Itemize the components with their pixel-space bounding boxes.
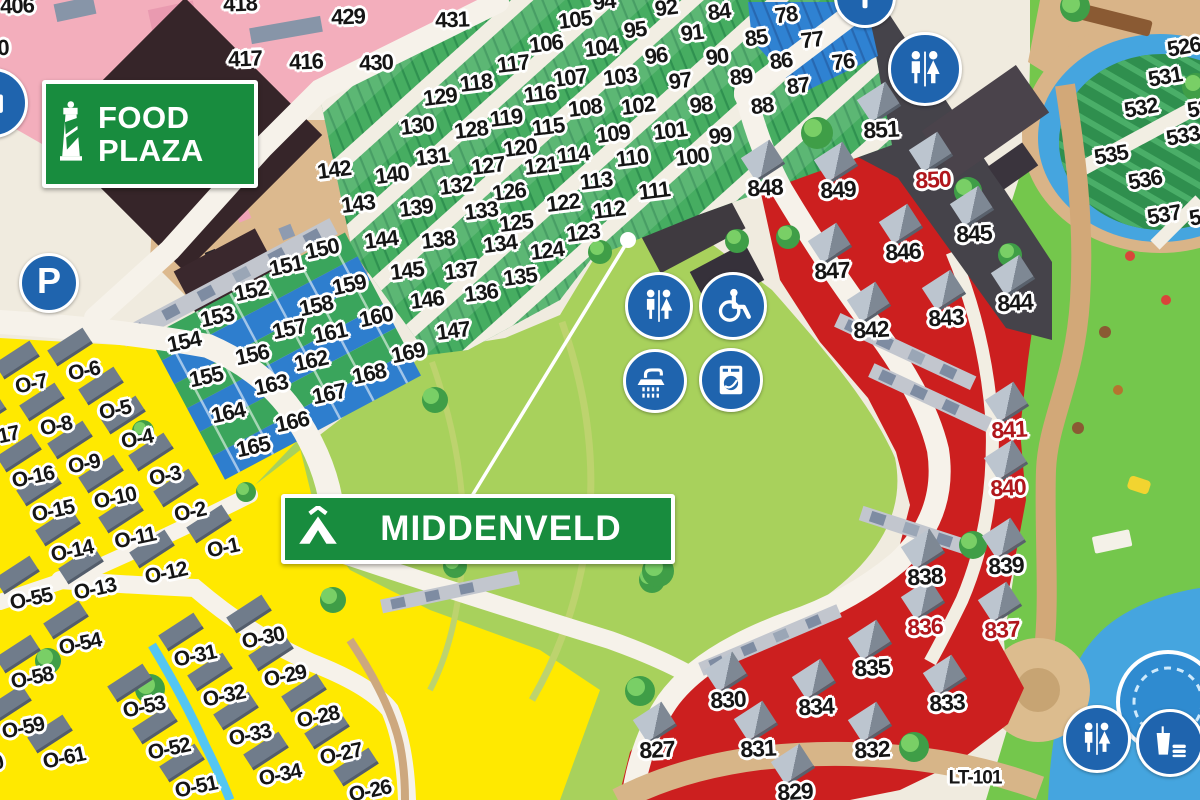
chalets-800-label: 830 <box>710 688 747 713</box>
parcels-500-label: 533 <box>1164 122 1200 150</box>
bungalows-O-label: O-28 <box>295 702 341 731</box>
bungalows-O-label: O-14 <box>49 536 95 565</box>
camping-field-label: 146 <box>409 287 445 313</box>
bungalows-O-label: O-26 <box>347 776 393 800</box>
chalets-800-label: 846 <box>885 240 922 265</box>
bungalows-O-label: O-59 <box>0 713 46 742</box>
strip-parcels-label: 159 <box>330 271 368 300</box>
camping-field-label: 129 <box>422 84 458 110</box>
bungalows-O-label: O-3 <box>147 462 183 489</box>
camping-field-label: 85 <box>744 26 769 51</box>
chalets-800-label: 843 <box>928 306 965 331</box>
wheelchair-icon[interactable] <box>699 272 767 340</box>
strip-parcels-label: 162 <box>292 347 330 376</box>
chalets-800-label: 849 <box>820 178 857 203</box>
camping-field-label: 143 <box>340 191 376 217</box>
camping-field-label: 119 <box>489 105 524 131</box>
bungalows-O-label: O-5 <box>97 396 133 423</box>
chalets-800-label: 839 <box>988 554 1025 579</box>
parcels-500-label: 534 <box>1185 94 1200 122</box>
toilets-icon[interactable] <box>1063 705 1131 773</box>
camping-field-label: 108 <box>567 95 603 121</box>
strip-parcels-label: 163 <box>252 371 290 400</box>
road-ref-label: LT-101 <box>949 769 1002 788</box>
camping-field-label: 128 <box>453 117 489 143</box>
lighthouse-icon <box>52 99 90 170</box>
camping-field-label: 99 <box>708 124 733 149</box>
strip-parcels-label: 166 <box>273 408 311 437</box>
camping-field-label: 139 <box>398 195 434 221</box>
chalets-800-label: 841 <box>991 418 1028 443</box>
bungalows-O-label: O-10 <box>92 483 138 512</box>
camping-field-label: 142 <box>316 157 352 183</box>
camping-field-label: 77 <box>800 28 825 53</box>
camping-field-label: 145 <box>389 258 425 284</box>
camping-field-label: 102 <box>620 93 656 119</box>
parcels-500-label: 531 <box>1146 63 1183 91</box>
chalets-800-label: 836 <box>907 615 944 640</box>
bungalows-O-label: O-2 <box>172 498 208 525</box>
camping-field-label: 100 <box>674 144 710 170</box>
parking-icon[interactable]: P <box>19 253 79 313</box>
camping-field-label: 76 <box>831 50 856 75</box>
bungalows-O-label: O-12 <box>143 558 189 587</box>
camping-field-label: 109 <box>595 121 631 147</box>
camping-field-label: 86 <box>769 49 794 74</box>
food-drink-icon[interactable] <box>1136 709 1200 777</box>
chalets-800-label: 837 <box>984 618 1021 643</box>
strip-parcels-label: 153 <box>198 303 236 332</box>
parcels-500-label: 532 <box>1122 94 1159 122</box>
strip-parcels-label: 151 <box>267 252 305 281</box>
camping-field-label: 147 <box>435 318 471 344</box>
chalets-800-label: 848 <box>747 176 784 201</box>
bungalows-O-label: O-13 <box>72 574 118 603</box>
bungalows-O-label: O-9 <box>66 450 102 477</box>
chalets-800-label: 827 <box>639 738 676 763</box>
camping-field-label: 117 <box>496 51 531 77</box>
camping-field-label: 124 <box>529 238 565 264</box>
bungalows-O-label: O-29 <box>262 661 308 690</box>
pink-blocks-label: 430 <box>359 51 393 74</box>
chalets-800-label: 833 <box>929 691 966 716</box>
strip-parcels-label: 154 <box>165 328 203 357</box>
food-plaza-line1: FOOD <box>98 101 204 134</box>
camping-field-label: 101 <box>652 118 688 144</box>
parking-letter: P <box>37 260 61 302</box>
strip-parcels-label: 169 <box>389 339 427 368</box>
toilets-icon[interactable] <box>625 272 693 340</box>
chalets-800-label: 838 <box>907 565 944 590</box>
strip-parcels-label: 156 <box>233 341 271 370</box>
bungalows-O-label: O-4 <box>119 425 155 452</box>
camping-field-label: 78 <box>774 3 799 28</box>
camping-field-label: 105 <box>557 7 593 33</box>
camping-field-label: 138 <box>420 227 456 253</box>
pink-blocks-label: 429 <box>331 5 365 28</box>
camping-field-label: 144 <box>363 227 399 253</box>
bungalows-O-label: O-33 <box>227 720 273 749</box>
bungalows-O-label: O-1 <box>205 534 241 561</box>
camping-field-label: 91 <box>680 21 705 46</box>
bungalows-O-label: O-27 <box>318 739 364 768</box>
bungalows-O-label: O-55 <box>8 584 54 613</box>
bungalows-O-label: O-54 <box>57 629 103 658</box>
chalets-800-label: 842 <box>853 318 890 343</box>
pink-blocks-label: 0 <box>0 37 9 59</box>
bungalows-O-label: O-34 <box>257 760 303 789</box>
food-plaza-line2: PLAZA <box>98 134 204 167</box>
bungalows-O-label: O-6 <box>66 357 102 384</box>
camping-field-label: 95 <box>623 18 648 43</box>
strip-parcels-label: 160 <box>357 303 395 332</box>
chalets-800-label: 844 <box>997 291 1034 316</box>
camping-field-label: 131 <box>414 144 450 170</box>
chalets-800-label: 845 <box>956 222 993 247</box>
middenveld-label: MIDDENVELD <box>341 509 661 549</box>
parcels-500-label: 537 <box>1145 201 1182 229</box>
strip-parcels-label: 165 <box>234 433 272 462</box>
strip-parcels-label: 150 <box>303 235 341 264</box>
camping-field-label: 135 <box>502 264 538 290</box>
chalets-800-label: 834 <box>798 695 835 720</box>
chalets-800-label: 847 <box>814 259 851 284</box>
camping-field-label: 96 <box>644 44 669 69</box>
camping-field-label: 116 <box>523 81 558 107</box>
bungalows-O-label: O-17 <box>0 422 21 451</box>
camping-field-label: 132 <box>438 173 474 199</box>
bungalows-O-label: O-61 <box>41 743 87 772</box>
camping-field-label: 90 <box>705 45 730 70</box>
tent-icon <box>295 506 341 553</box>
strip-parcels-label: 168 <box>350 360 388 389</box>
parcels-500-label: 535 <box>1092 141 1129 169</box>
camping-field-label: 136 <box>463 280 499 306</box>
chalets-800-label: 832 <box>854 738 891 763</box>
strip-parcels-label: 167 <box>310 380 348 409</box>
camping-field-label: 88 <box>750 94 775 119</box>
camping-field-label: 104 <box>583 35 619 61</box>
strip-parcels-label: 164 <box>209 399 247 428</box>
camping-field-label: 106 <box>528 31 564 57</box>
chalets-800-label: 850 <box>915 168 952 193</box>
campground-map: 4060418417416429430431949284781059591857… <box>0 0 1200 800</box>
camping-field-label: 110 <box>615 145 650 171</box>
camping-field-label: 113 <box>579 168 614 194</box>
bungalows-O-label: O-51 <box>173 772 219 800</box>
chalets-800-label: 835 <box>854 656 891 681</box>
camping-field-label: 133 <box>463 198 499 224</box>
chalets-800-label: 829 <box>777 780 814 800</box>
camping-field-label: 114 <box>556 142 591 168</box>
camping-field-label: 94 <box>592 0 617 14</box>
chalets-800-label: 831 <box>740 737 777 762</box>
strip-parcels-label: 155 <box>187 363 225 392</box>
bungalows-O-label: O-58 <box>9 663 55 692</box>
camping-field-label: 140 <box>374 162 410 188</box>
camping-field-label: 127 <box>470 153 506 179</box>
camping-field-label: 84 <box>707 0 732 24</box>
strip-parcels-label: 152 <box>232 277 270 306</box>
chalets-800-label: 840 <box>990 476 1027 501</box>
camping-field-label: 107 <box>552 65 588 91</box>
camping-field-label: 130 <box>399 113 435 139</box>
bungalows-O-label: O-30 <box>240 623 286 652</box>
bungalows-O-label: O-11 <box>113 523 158 552</box>
camping-field-label: 92 <box>654 0 679 20</box>
parcels-500-label: 536 <box>1126 166 1163 194</box>
camping-field-label: 111 <box>637 178 671 204</box>
camping-field-label: 118 <box>459 70 494 96</box>
bungalows-O-label: O-8 <box>38 412 74 439</box>
bungalows-O-label: O-7 <box>13 370 49 397</box>
camping-field-label: 122 <box>545 190 581 216</box>
camping-field-label: 98 <box>689 93 714 118</box>
toilets-icon[interactable] <box>888 32 962 106</box>
camping-field-label: 134 <box>482 231 518 257</box>
pink-blocks-label: 418 <box>223 0 257 16</box>
bungalows-O-label: O-15 <box>30 496 76 525</box>
pink-blocks-label: 431 <box>435 8 469 31</box>
shower-icon[interactable] <box>623 349 687 413</box>
strip-parcels-label: 158 <box>297 292 335 321</box>
pink-blocks-label: 406 <box>0 0 34 18</box>
parcels-500-label: 526 <box>1165 33 1200 61</box>
bungalows-O-label: O-53 <box>121 692 167 721</box>
pink-blocks-label: 417 <box>228 47 262 70</box>
strip-parcels-label: 161 <box>311 319 349 348</box>
laundry-icon[interactable] <box>699 348 763 412</box>
bungalows-O-label: O-16 <box>10 462 56 491</box>
parcels-500-label: 538 <box>1187 202 1200 230</box>
camping-field-label: 89 <box>729 65 754 90</box>
food-plaza-sign: FOOD PLAZA <box>42 80 258 188</box>
pink-blocks-label: 416 <box>289 50 323 73</box>
bungalows-O-label: O-31 <box>172 641 218 670</box>
bungalows-O-label: O-60 <box>0 751 5 780</box>
camping-field-label: 121 <box>523 153 559 179</box>
camping-field-label: 103 <box>602 64 638 90</box>
bungalows-O-label: O-32 <box>201 681 247 710</box>
camping-field-label: 123 <box>565 220 601 246</box>
camping-field-label: 87 <box>786 74 811 99</box>
bungalows-O-label: O-52 <box>146 734 192 763</box>
chalets-800-label: 851 <box>863 118 900 143</box>
middenveld-sign: MIDDENVELD <box>281 494 675 564</box>
camping-field-label: 97 <box>668 69 693 94</box>
